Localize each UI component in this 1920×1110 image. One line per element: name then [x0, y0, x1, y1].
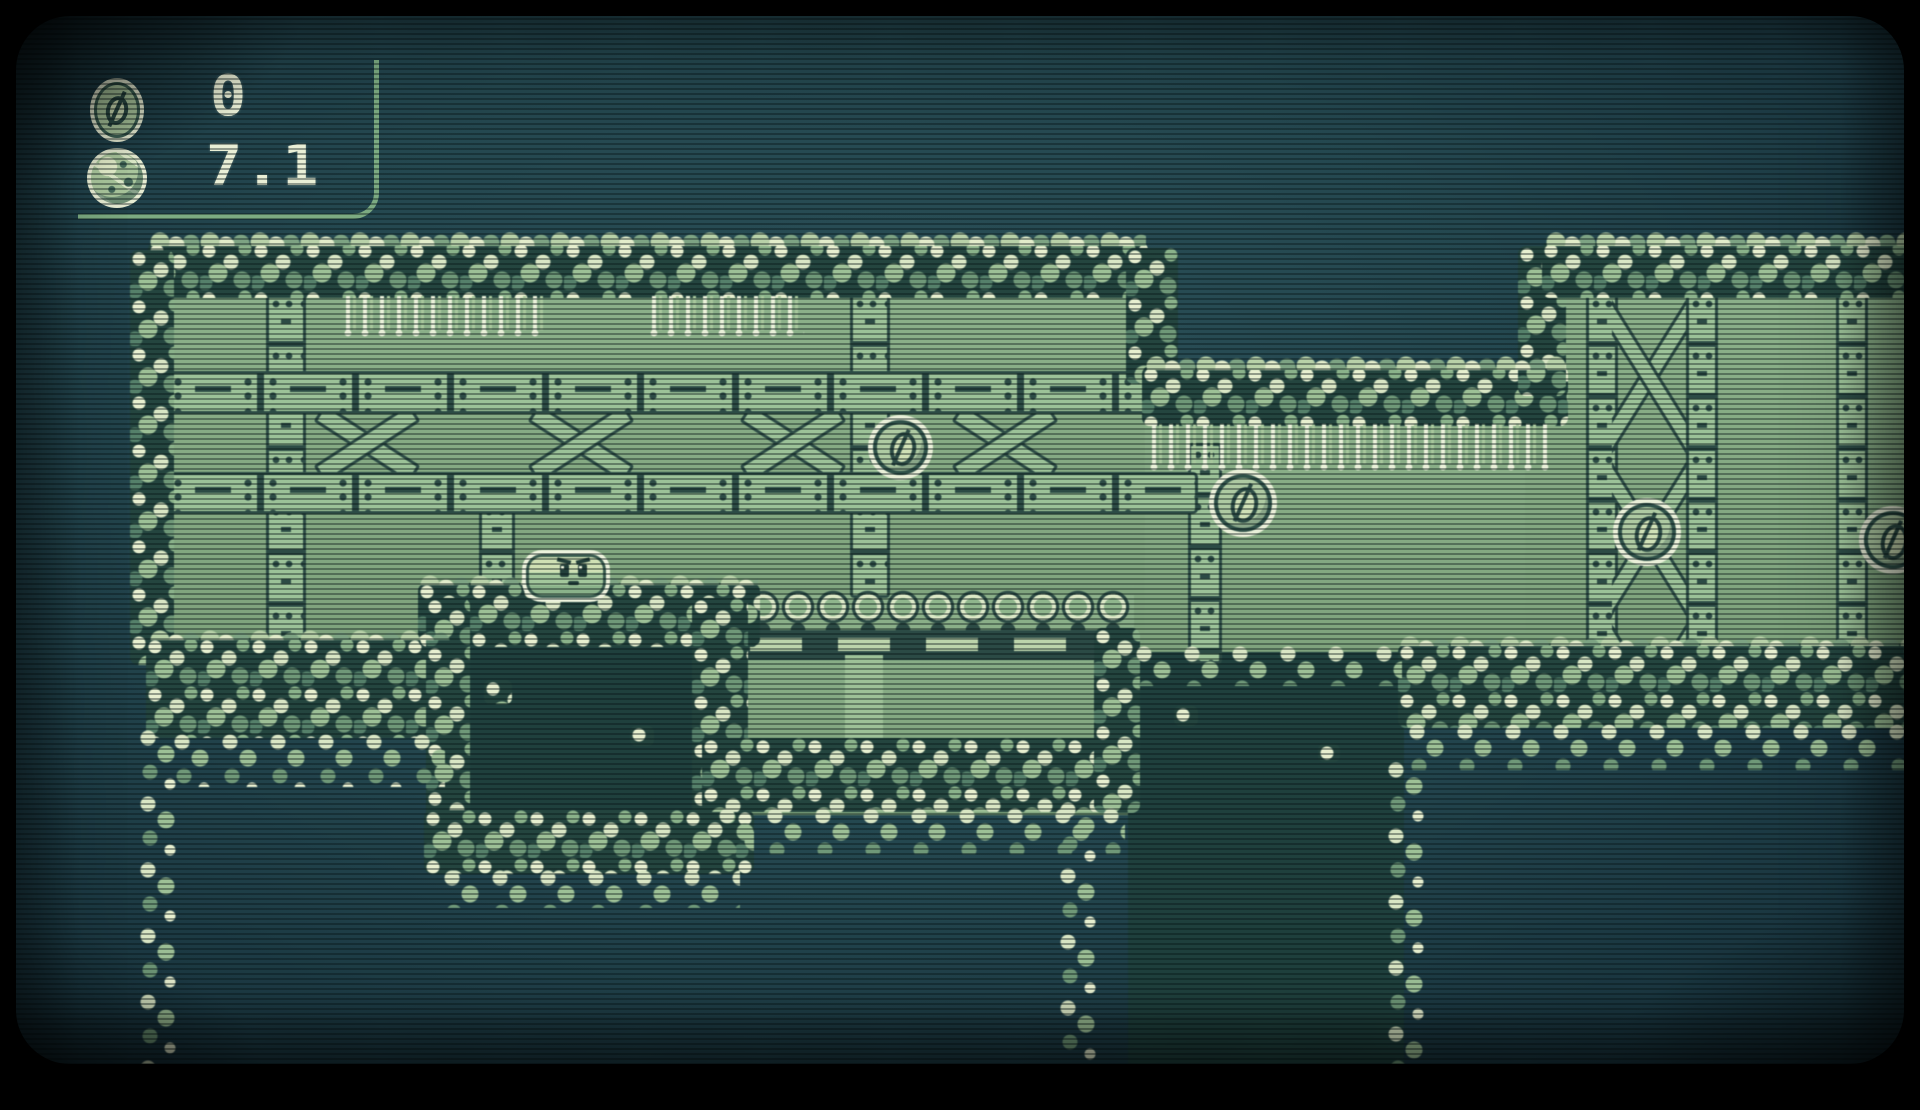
hud: 0 7.1 — [0, 0, 1920, 1080]
crt-stage: 0 7.1 — [0, 0, 1920, 1080]
game-screen[interactable]: 0 7.1 — [0, 0, 1920, 1080]
depth-meter-value: 7.1 — [206, 138, 320, 194]
coin-counter-value: 0 — [210, 68, 248, 124]
coin-icon — [94, 82, 140, 138]
yarn-ball-icon — [91, 152, 143, 204]
